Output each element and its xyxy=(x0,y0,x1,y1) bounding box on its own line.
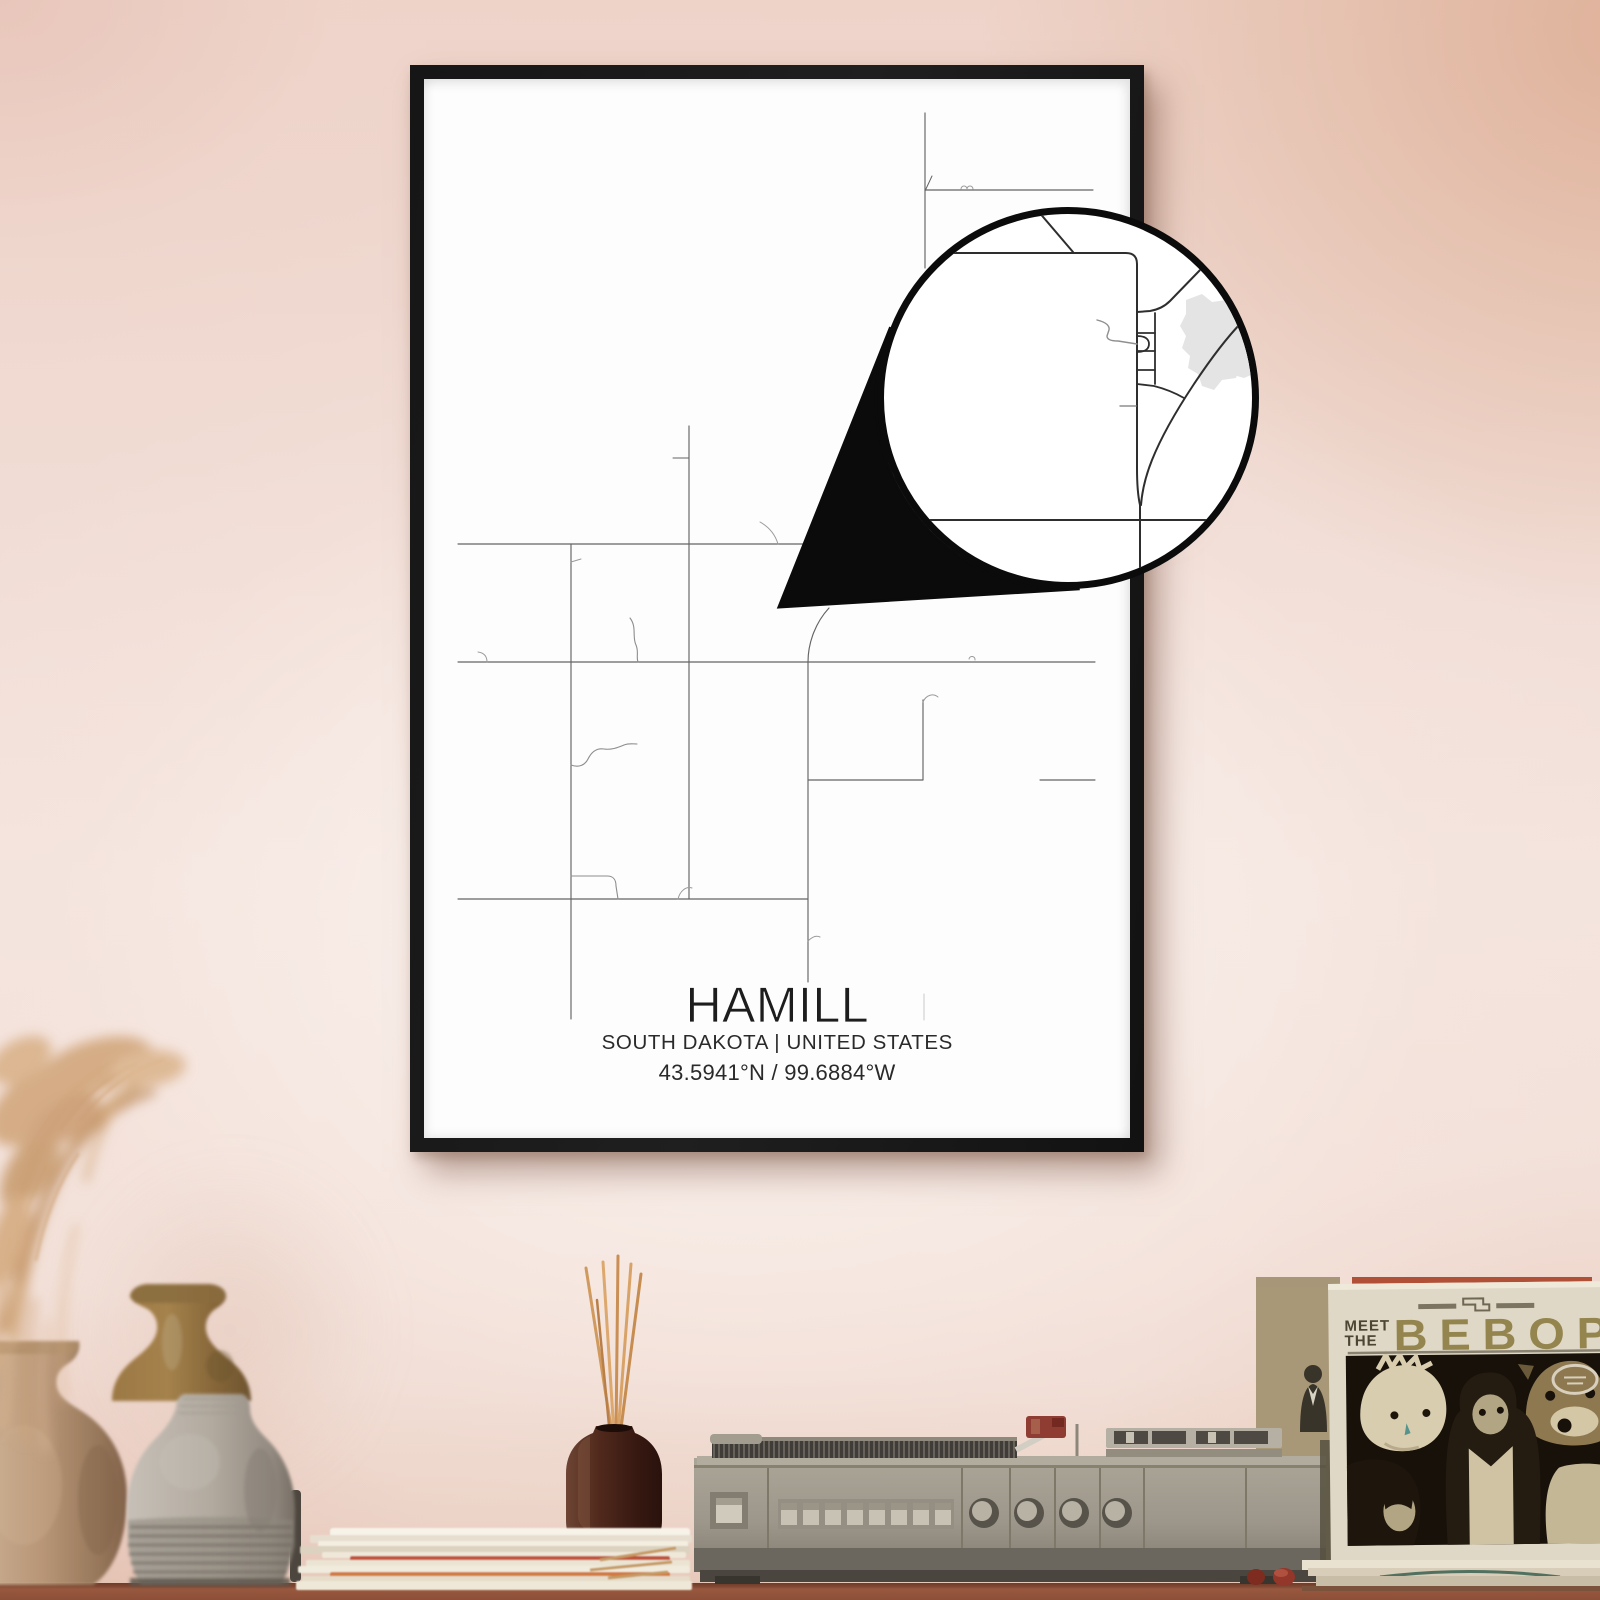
svg-text:THE: THE xyxy=(1345,1332,1378,1349)
